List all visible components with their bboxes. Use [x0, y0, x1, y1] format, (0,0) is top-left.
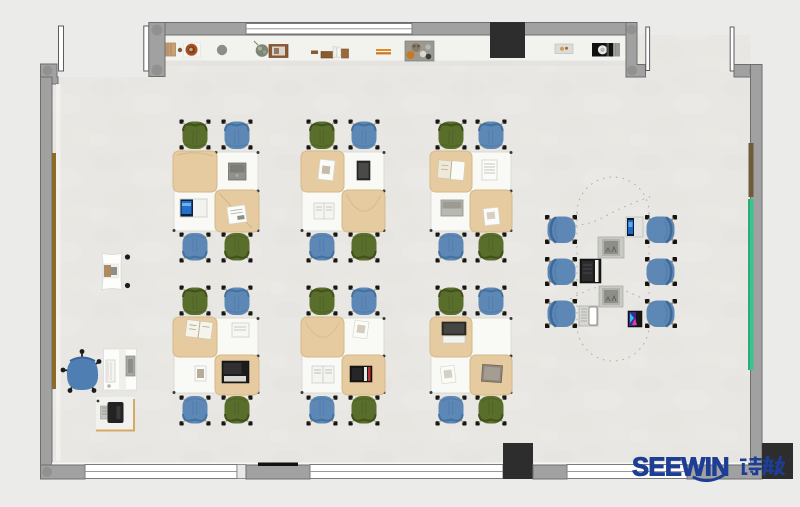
svg-text:SEEWIN: SEEWIN [632, 454, 729, 482]
